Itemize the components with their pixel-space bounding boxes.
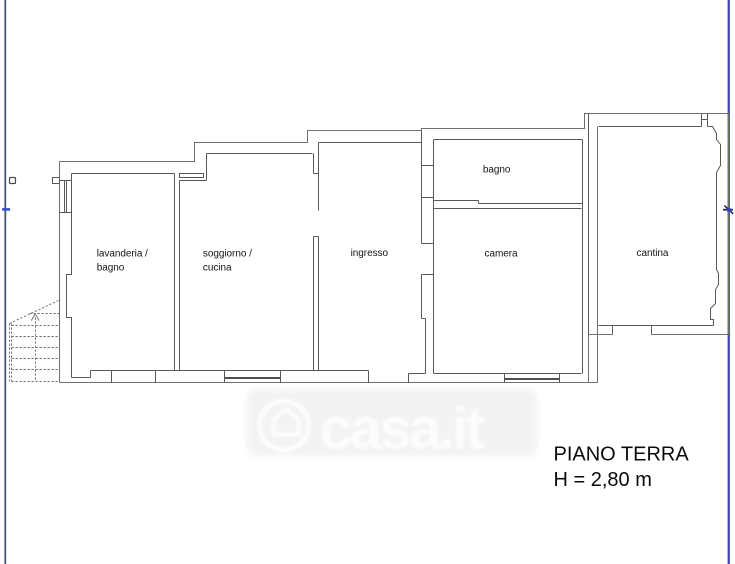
svg-text:bagno: bagno <box>483 164 511 175</box>
svg-text:lavanderia /: lavanderia / <box>97 249 148 260</box>
svg-text:casa.it: casa.it <box>320 397 485 462</box>
svg-text:camera: camera <box>485 248 519 259</box>
svg-text:PIANO TERRA: PIANO TERRA <box>554 444 690 466</box>
svg-text:cucina: cucina <box>203 263 232 274</box>
svg-text:H = 2,80 m: H = 2,80 m <box>554 469 652 491</box>
svg-text:bagno: bagno <box>97 263 125 274</box>
svg-text:soggiorno /: soggiorno / <box>203 249 252 260</box>
svg-text:ingresso: ingresso <box>351 248 389 259</box>
svg-text:cantina: cantina <box>637 248 669 259</box>
